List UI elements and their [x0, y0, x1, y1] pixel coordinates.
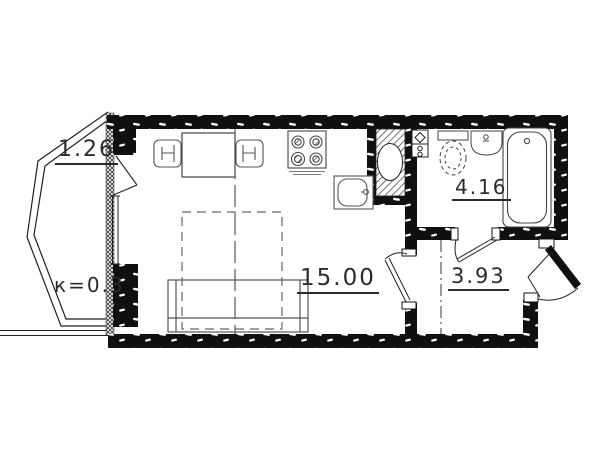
dining-table [182, 133, 235, 177]
hallway-area-label: 3.93 [448, 266, 509, 291]
washbasin [471, 131, 502, 155]
kitchen-sink [334, 176, 373, 209]
entrance-door [528, 245, 581, 300]
chair-left [154, 140, 181, 167]
floor-plan: 1.26 к=0.3 15.00 4.16 3.93 [0, 0, 610, 469]
toilet [438, 131, 468, 175]
wall-bottom [108, 334, 538, 348]
plumbing-riser [412, 130, 428, 157]
wall-bathroom-bottom-right-seg [498, 227, 568, 240]
bathroom-area-label: 4.16 [452, 177, 511, 201]
stove [288, 131, 326, 175]
wall-top [107, 115, 568, 129]
chair-right [236, 140, 263, 167]
balcony-area-label: 1.26 [55, 139, 118, 165]
sofa [168, 280, 308, 332]
room-door [385, 253, 410, 302]
balcony-coefficient-label: к=0.3 [54, 275, 125, 295]
bathroom-door [455, 237, 497, 262]
ventilation-shaft [376, 129, 405, 196]
exterior-extension-lines [0, 331, 108, 336]
living-room-area-label: 15.00 [297, 267, 379, 294]
fold-out-bed-dashed [182, 212, 282, 329]
floor-plan-drawing [0, 0, 610, 469]
wall-right-bathroom [554, 115, 568, 240]
